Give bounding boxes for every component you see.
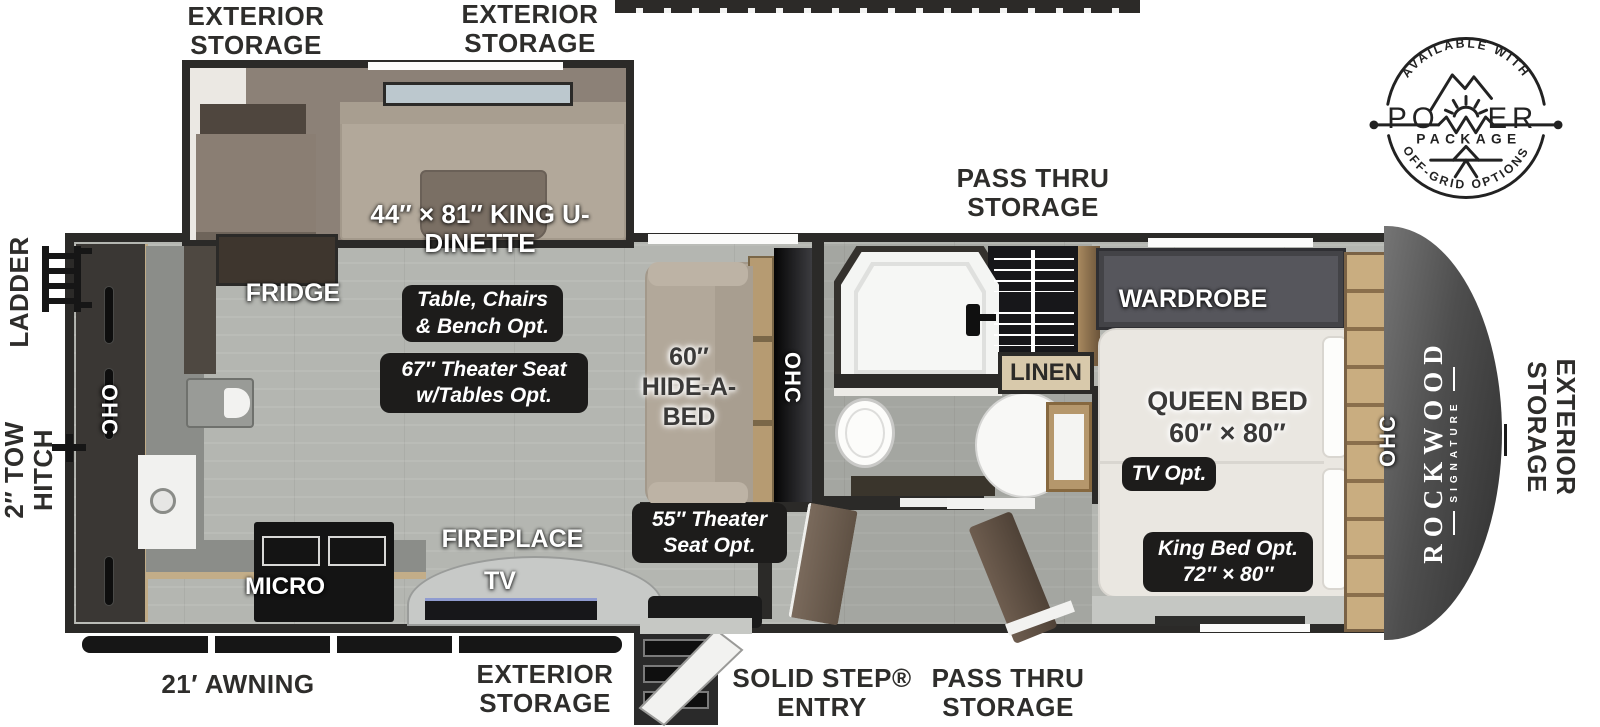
ohc-label-sofa: OHC [776, 346, 804, 410]
linen-cabinet: LINEN [998, 352, 1094, 394]
brand-rule-icon [1453, 367, 1455, 391]
mountains-icon [1431, 75, 1492, 110]
shower-head-arm [978, 314, 996, 321]
brand-logo: ROCKWOOD [1419, 331, 1449, 571]
shower-threshold [834, 388, 1002, 396]
king-u-dinette-label: 44″ × 81″ KING U-DINETTE [355, 200, 605, 257]
pass-thru-storage-label-top: PASS THRU STORAGE [938, 164, 1128, 222]
brand-signature: SIGNATURE [1449, 331, 1460, 571]
appliance-cup [224, 388, 250, 418]
peak-icon [1453, 146, 1478, 160]
shelf-pole-icon [1031, 250, 1035, 360]
entry-steps-icon [630, 630, 746, 727]
hide-a-bed-label: 60″ HIDE-A-BED [635, 342, 743, 432]
slide-topper [615, 0, 1140, 13]
kitchen-sink [150, 488, 176, 514]
shower-pan-inner2 [858, 266, 982, 370]
solid-step-entry-label: SOLID STEP® ENTRY [727, 664, 917, 722]
theater-67-option-box: 67″ Theater Seat w/Tables Opt. [380, 353, 588, 413]
ohc-label-kitchen: OHC [93, 375, 121, 445]
doorway-gap [640, 618, 752, 634]
pantry-cabinet [184, 246, 216, 374]
exterior-storage-label-right: EXTERIOR STORAGE [1518, 342, 1580, 512]
cabinet-handle-icon [104, 286, 114, 344]
brand-rule-icon [1453, 511, 1455, 535]
slide-shelf [200, 104, 306, 136]
floorplan: EXTERIOR STORAGE EXTERIOR STORAGE PASS T… [0, 0, 1600, 727]
svg-text:AVAILABLE WITH: AVAILABLE WITH [1399, 36, 1533, 80]
tv-screen [425, 598, 597, 620]
window-gap-bottom-bedroom [1200, 624, 1310, 632]
sun-icon [1445, 96, 1486, 116]
badge-power-right: ER [1488, 102, 1539, 135]
tow-hitch-label: 2″ TOW HITCH [0, 415, 60, 525]
cabinet-handle-icon [104, 556, 114, 606]
bath-counter [851, 476, 995, 496]
cap-handle-icon [1504, 424, 1507, 456]
awning-label: 21′ AWNING [138, 670, 338, 699]
slide-window [383, 82, 573, 106]
awning-bar [82, 636, 622, 653]
ladder-label: LADDER [5, 232, 35, 352]
pass-thru-storage-label-bottom: PASS THRU STORAGE [910, 664, 1106, 722]
tow-hitch-icon [52, 434, 86, 462]
badge-available-with: AVAILABLE WITH [1399, 36, 1533, 80]
burner-grate-icon [262, 536, 320, 566]
fridge-back-box [196, 134, 316, 240]
badge-power-left: PO [1387, 102, 1439, 135]
fireplace-label: FIREPLACE [420, 526, 605, 554]
brand-block: ROCKWOOD SIGNATURE [1419, 331, 1477, 571]
ladder-icon [34, 240, 92, 320]
tv-option-box: TV Opt. [1122, 457, 1216, 491]
exterior-storage-label-top-left: EXTERIOR STORAGE [168, 2, 344, 60]
exterior-storage-label-bottom: EXTERIOR STORAGE [452, 660, 638, 718]
ohc-label-bedroom: OHC [1376, 411, 1404, 471]
window-gap-top-bedroom [1148, 238, 1313, 247]
linen-label: LINEN [1010, 359, 1082, 387]
toilet-seat [845, 408, 885, 458]
fridge-label: FRIDGE [233, 280, 353, 308]
slide-wall [812, 240, 824, 512]
badge-package: PACKAGE [1416, 131, 1521, 146]
vanity-cabinet-inner [1054, 414, 1084, 480]
wardrobe-label: WARDROBE [1108, 286, 1278, 314]
theater-55-option-box: 55″ Theater Seat Opt. [632, 503, 787, 563]
window-gap-top-living [648, 234, 798, 244]
king-bed-option-box: King Bed Opt. 72″ × 80″ [1143, 532, 1313, 592]
table-chairs-option-box: Table, Chairs & Bench Opt. [402, 285, 563, 342]
badge-off-grid: OFF-GRID OPTIONS [1400, 144, 1532, 192]
peak-reflection-icon [1455, 160, 1477, 177]
shower-ledge [834, 374, 1002, 388]
zigzag-icon [1439, 117, 1494, 133]
micro-label: MICRO [225, 574, 345, 600]
queen-bed-label: QUEEN BED 60″ × 80″ [1140, 385, 1315, 450]
exterior-storage-label-top-right: EXTERIOR STORAGE [442, 0, 618, 58]
burner-grate-icon [328, 536, 386, 566]
entry-threshold [947, 498, 1035, 509]
tv-label: TV [455, 568, 545, 596]
power-package-badge: AVAILABLE WITH PO ER PACKAGE OFF-GRID OP… [1368, 20, 1564, 216]
sofa-armrest [648, 262, 748, 286]
slide-top-window-gap [368, 62, 563, 70]
svg-text:OFF-GRID OPTIONS: OFF-GRID OPTIONS [1400, 144, 1532, 192]
